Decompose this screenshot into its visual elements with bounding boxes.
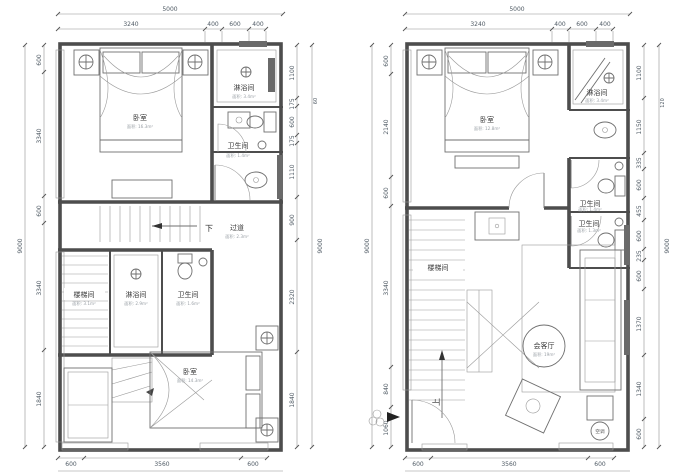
toilet-icon xyxy=(178,263,192,279)
room-area: 面积: 3.4m² xyxy=(232,93,256,100)
dim-label: 3560 xyxy=(154,461,169,468)
dim-label: 5000 xyxy=(162,6,177,13)
room-area: 面积: 3.1m² xyxy=(72,300,96,307)
bathroom-mid: 卫生间 面积: 1.6m² xyxy=(176,254,207,307)
direction-label: 下 xyxy=(205,224,213,233)
dim-label: 3340 xyxy=(36,128,43,143)
wardrobe xyxy=(64,368,112,442)
room-label: 卫生间 xyxy=(228,141,249,150)
room-area: 面积: 3.4m² xyxy=(585,97,609,104)
dim-label: 3340 xyxy=(36,280,43,295)
floor-drain-icon xyxy=(199,258,207,266)
winder-stair xyxy=(112,358,154,402)
dim-label: 1840 xyxy=(289,392,296,407)
double-bed xyxy=(445,48,529,152)
dim-label: 235 xyxy=(636,250,643,262)
arrow-icon xyxy=(439,350,445,360)
stair-room: 楼梯间 面积: 3.1m² xyxy=(62,256,108,346)
dim-mark: 60 xyxy=(313,98,319,104)
toilet-tank xyxy=(178,254,192,263)
dim-label: 1840 xyxy=(36,391,43,406)
nightstand xyxy=(183,50,208,75)
dim-label: 175 xyxy=(289,98,296,110)
direction-label: 上 xyxy=(432,398,441,406)
bed-bench xyxy=(455,156,519,168)
armchair xyxy=(506,379,561,433)
room-label: 过道 xyxy=(230,223,244,232)
dim-label: 600 xyxy=(636,428,643,440)
dim-label: 600 xyxy=(636,270,643,282)
basin xyxy=(489,218,505,234)
dim-label: 600 xyxy=(594,461,606,468)
room-area: 面积: 16.3m² xyxy=(127,123,154,130)
room-area: 面积: 1.3m² xyxy=(577,227,601,234)
toilet-tank xyxy=(264,112,276,132)
room-label: 卫生间 xyxy=(579,219,600,228)
dimensions-top: 5000 3240 400 600 400 xyxy=(56,6,285,42)
dimensions-right: 1100 175 600 175 1110 900 2320 1840 60 9… xyxy=(289,43,324,449)
nightstand xyxy=(533,50,558,75)
toilet-icon xyxy=(598,179,614,193)
room-label: 卫生间 xyxy=(178,290,199,299)
door-swing xyxy=(215,165,250,200)
dim-label: 3240 xyxy=(470,21,485,28)
double-bed xyxy=(150,352,262,428)
dim-label: 9000 xyxy=(17,238,24,253)
dimensions-bottom: 600 3560 600 xyxy=(403,456,630,471)
dim-label: 2320 xyxy=(289,289,296,304)
floor-plan-upper: 5000 3240 400 600 400 9000 600 3340 600 … xyxy=(0,0,347,473)
dim-label: 1150 xyxy=(636,119,643,134)
dim-label: 600 xyxy=(229,21,241,28)
floor-drain-icon xyxy=(258,141,266,149)
dim-label: 400 xyxy=(252,21,264,28)
living-room: 会客厅 面积: 19m² 空调 xyxy=(506,245,621,440)
ac-unit: 空调 xyxy=(591,422,609,440)
dim-label: 9000 xyxy=(317,238,324,253)
dim-label: 400 xyxy=(554,21,566,28)
dim-label: 600 xyxy=(383,187,390,199)
mid-vanity xyxy=(475,212,519,240)
toilet-icon xyxy=(247,116,263,128)
hall-vanity xyxy=(215,165,267,200)
room-label: 卧室 xyxy=(133,113,147,122)
sofa xyxy=(580,250,621,390)
hall-vanity xyxy=(594,122,616,138)
dim-label: 600 xyxy=(636,230,643,242)
bathroom-1: 卫生间 面积: 1.4m² xyxy=(571,160,625,213)
ac-label: 空调 xyxy=(595,428,605,435)
room-label: 楼梯间 xyxy=(428,263,449,272)
side-table xyxy=(587,396,613,420)
dim-label: 600 xyxy=(412,461,424,468)
dim-label: 600 xyxy=(383,55,390,67)
floor-plan-lower: 5000 3240 400 600 400 9000 600 2140 600 … xyxy=(347,0,694,473)
walls xyxy=(56,41,283,450)
dim-label: 9000 xyxy=(364,238,371,253)
bedroom-bottom: 卧室 面积: 14.3m² xyxy=(64,326,278,442)
dim-label: 455 xyxy=(636,205,643,217)
dim-label: 400 xyxy=(207,21,219,28)
dim-label: 600 xyxy=(36,54,43,66)
dim-label: 1100 xyxy=(636,65,643,80)
dim-label: 600 xyxy=(289,116,296,128)
sink-icon xyxy=(594,122,616,138)
radiator xyxy=(112,180,172,198)
dim-label: 600 xyxy=(247,461,259,468)
dim-label: 900 xyxy=(289,214,296,226)
door-swing xyxy=(509,173,544,208)
staircase: 楼梯间 上 xyxy=(409,220,539,418)
dim-label: 840 xyxy=(383,383,390,395)
room-label: 淋浴间 xyxy=(234,83,255,92)
room-area: 面积: 14.3m² xyxy=(177,377,204,384)
toilet-tank xyxy=(615,176,625,196)
dim-mark: 120 xyxy=(660,98,666,108)
dim-label: 335 xyxy=(636,157,643,169)
door-swing xyxy=(571,160,599,188)
basin xyxy=(228,112,250,128)
dimensions-left: 9000 600 3340 600 3340 1840 xyxy=(17,43,46,449)
dimensions-left: 9000 600 2140 600 3340 840 1060 xyxy=(364,43,393,449)
dim-label: 175 xyxy=(289,135,296,147)
dim-label: 600 xyxy=(576,21,588,28)
dimensions-right: 1100 1150 335 600 455 600 235 600 1370 1… xyxy=(636,43,671,449)
dim-label: 1100 xyxy=(289,65,296,80)
room-area: 面积: 12.8m² xyxy=(474,125,501,132)
room-area: 面积: 2.3m² xyxy=(225,233,249,240)
room-label: 卧室 xyxy=(183,367,197,376)
dim-label: 600 xyxy=(36,205,43,217)
floor-drain-icon xyxy=(615,218,623,226)
dimensions-top: 5000 3240 400 600 400 xyxy=(403,6,632,42)
room-label: 会客厅 xyxy=(534,341,555,350)
floorplan-canvas: 5000 3240 400 600 400 9000 600 3340 600 … xyxy=(0,0,694,473)
dim-label: 5000 xyxy=(509,6,524,13)
room-area: 面积: 19m² xyxy=(533,351,556,358)
round-table: 会客厅 面积: 19m² xyxy=(523,325,565,367)
bedroom: 卧室 面积: 12.8m² xyxy=(417,48,558,208)
shower-room-top: 淋浴间 面积: 3.4m² xyxy=(217,50,276,102)
dimensions-bottom: 600 3560 600 xyxy=(56,456,283,471)
shower-room: 淋浴间 面积: 3.4m² xyxy=(573,50,623,104)
shower-room-mid: 淋浴间 面积: 2.9m² xyxy=(114,255,158,347)
dim-label: 9000 xyxy=(664,238,671,253)
nightstand xyxy=(74,50,99,75)
room-area: 面积: 1.4m² xyxy=(226,152,250,159)
room-label: 淋浴间 xyxy=(126,290,147,299)
sink-icon xyxy=(245,172,267,188)
room-area: 面积: 2.9m² xyxy=(124,300,148,307)
dim-label: 1340 xyxy=(636,381,643,396)
dim-label: 3340 xyxy=(383,280,390,295)
toilet-tank xyxy=(615,230,625,250)
dim-label: 600 xyxy=(636,179,643,191)
room-label: 楼梯间 xyxy=(74,290,95,299)
nightstand xyxy=(417,50,442,75)
room-area: 面积: 1.6m² xyxy=(176,300,200,307)
floor-drain-icon xyxy=(615,162,623,170)
room-label: 淋浴间 xyxy=(587,88,608,97)
dim-label: 3560 xyxy=(501,461,516,468)
dim-label: 1370 xyxy=(636,316,643,331)
arrow-icon xyxy=(152,223,162,229)
dim-label: 400 xyxy=(599,21,611,28)
room-area: 面积: 1.4m² xyxy=(578,206,602,213)
corridor-stairs: 下 过道 面积: 2.3m² xyxy=(100,206,249,242)
dim-label: 2140 xyxy=(383,119,390,134)
dim-label: 1110 xyxy=(289,164,296,179)
double-bed xyxy=(100,48,182,152)
dim-label: 3240 xyxy=(123,21,138,28)
room-label: 卧室 xyxy=(480,115,494,124)
bedroom-top: 卧室 面积: 16.3m² xyxy=(74,48,208,198)
dim-label: 600 xyxy=(65,461,77,468)
